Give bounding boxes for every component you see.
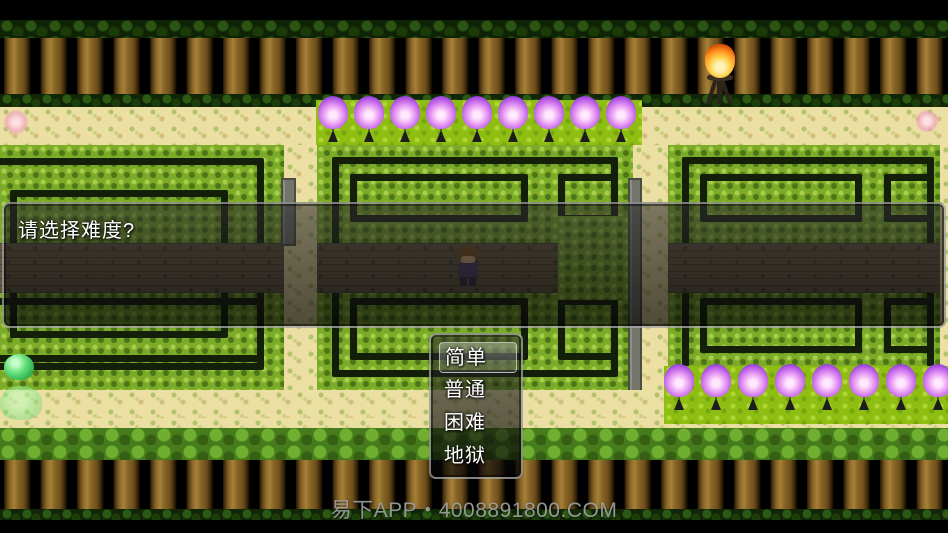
- purple-flame-icon: [570, 96, 600, 129]
- orange-flame-icon: [705, 44, 735, 78]
- purple-torch: [316, 96, 350, 146]
- purple-flame-icon: [738, 364, 768, 397]
- purple-flame-icon: [354, 96, 384, 129]
- purple-flame-icon: [534, 96, 564, 129]
- purple-flame-icon: [426, 96, 456, 129]
- choice-option-normal[interactable]: 普通: [439, 375, 517, 406]
- purple-flame-icon: [886, 364, 916, 397]
- choice-window: 简单 普通 困难 地狱: [429, 333, 523, 479]
- bonfire-torch: [702, 50, 740, 108]
- pink-flower: [916, 110, 938, 132]
- purple-flame-icon: [664, 364, 694, 397]
- purple-flame-icon: [498, 96, 528, 129]
- top-darkness: [0, 0, 948, 22]
- purple-torch: [568, 96, 602, 146]
- purple-torch: [773, 364, 807, 414]
- purple-flame-icon: [462, 96, 492, 129]
- game-screen: 请选择难度? 简单 普通 困难 地狱 易下APP・4008891800.COM: [0, 0, 948, 533]
- purple-torch: [352, 96, 386, 146]
- purple-torch: [388, 96, 422, 146]
- bonfire-leg: [720, 78, 732, 104]
- choice-option-hard[interactable]: 困难: [439, 408, 517, 439]
- purple-torch: [532, 96, 566, 146]
- purple-torch: [424, 96, 458, 146]
- purple-flame-icon: [775, 364, 805, 397]
- purple-torch: [847, 364, 881, 414]
- choice-option-hell[interactable]: 地狱: [439, 441, 517, 472]
- top-bush-row: [0, 20, 948, 40]
- purple-torch: [496, 96, 530, 146]
- purple-flame-icon: [849, 364, 879, 397]
- bonfire-leg: [717, 78, 721, 104]
- purple-flame-icon: [812, 364, 842, 397]
- purple-torch: [662, 364, 696, 414]
- purple-torch: [884, 364, 918, 414]
- purple-torch: [921, 364, 948, 414]
- purple-flame-icon: [701, 364, 731, 397]
- purple-flame-icon: [390, 96, 420, 129]
- green-slime-sprite: [4, 354, 34, 380]
- dialog-prompt-text: 请选择难度?: [18, 214, 135, 243]
- purple-torch: [810, 364, 844, 414]
- purple-flame-icon: [606, 96, 636, 129]
- purple-torch: [460, 96, 494, 146]
- purple-torch: [604, 96, 638, 146]
- message-window[interactable]: 请选择难度?: [2, 202, 946, 328]
- green-slime-ghost: [0, 386, 42, 420]
- purple-flame-icon: [923, 364, 948, 397]
- pink-flower: [4, 110, 28, 134]
- choice-option-easy[interactable]: 简单: [439, 342, 517, 373]
- purple-flame-icon: [318, 96, 348, 129]
- watermark-text: 易下APP・4008891800.COM: [0, 494, 948, 524]
- purple-torch: [736, 364, 770, 414]
- purple-torch: [699, 364, 733, 414]
